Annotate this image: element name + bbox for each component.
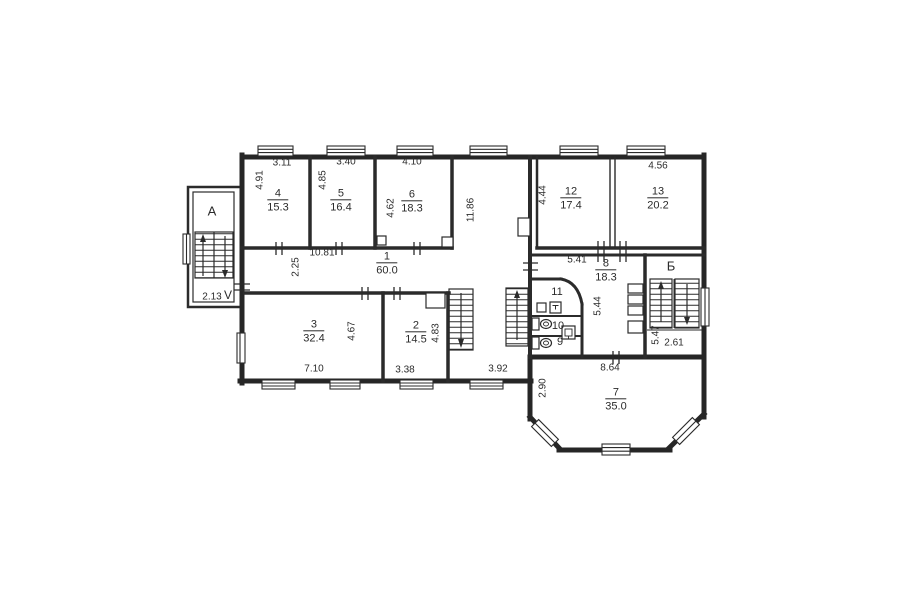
dimension-2.13: 2.13 [202,292,221,303]
dimension-10.81: 10.81 [309,248,334,259]
dimension-4.85: 4.85 [318,170,329,189]
dimension-4.67: 4.67 [347,321,358,340]
room-8-label: 818.3 [595,257,616,284]
stair-a-direction-mark: V [224,288,232,302]
room-10-label: 10 [552,320,564,332]
room-4-label: 415.3 [267,187,288,214]
dimension-4.44: 4.44 [538,185,549,204]
stair-a-label: A [208,204,217,219]
dimension-11.86: 11.86 [466,198,477,222]
room-9-label: 9 [557,336,563,348]
dimension-4.56: 4.56 [648,161,667,172]
room-5-label: 516.4 [330,187,351,214]
room-1-label: 160.0 [376,250,397,277]
dimension-3.38: 3.38 [395,365,414,376]
dimension-3.40: 3.40 [336,157,355,168]
room-11-label: 11 [551,286,562,298]
room-7-label: 735.0 [605,386,626,413]
dimension-2.61: 2.61 [664,338,683,349]
dimension-4.91: 4.91 [255,170,266,189]
labels-layer: A Б V 415.3516.4618.31217.41320.2160.033… [0,0,900,604]
room-2-label: 214.5 [405,319,426,346]
dimension-4.62: 4.62 [386,198,397,217]
dimension-5.41: 5.41 [567,255,586,266]
stair-b-label: Б [667,259,676,274]
dimension-4.83: 4.83 [431,323,442,342]
dimension-7.10: 7.10 [304,364,323,375]
dimension-3.11: 3.11 [273,158,292,169]
room-6-label: 618.3 [401,188,422,215]
dimension-5.44: 5.44 [593,296,604,315]
dimension-3.92: 3.92 [488,364,507,375]
dimension-2.25: 2.25 [291,257,302,276]
dimension-8.64: 8.64 [600,363,619,374]
dimension-2.90: 2.90 [538,378,549,397]
dimension-4.10: 4.10 [402,157,421,168]
room-3-label: 332.4 [303,318,324,345]
dimension-5.47: 5.47 [651,325,662,344]
floor-plan-page: A Б V 415.3516.4618.31217.41320.2160.033… [0,0,900,604]
room-12-label: 1217.4 [560,185,581,212]
room-13-label: 1320.2 [647,185,668,212]
